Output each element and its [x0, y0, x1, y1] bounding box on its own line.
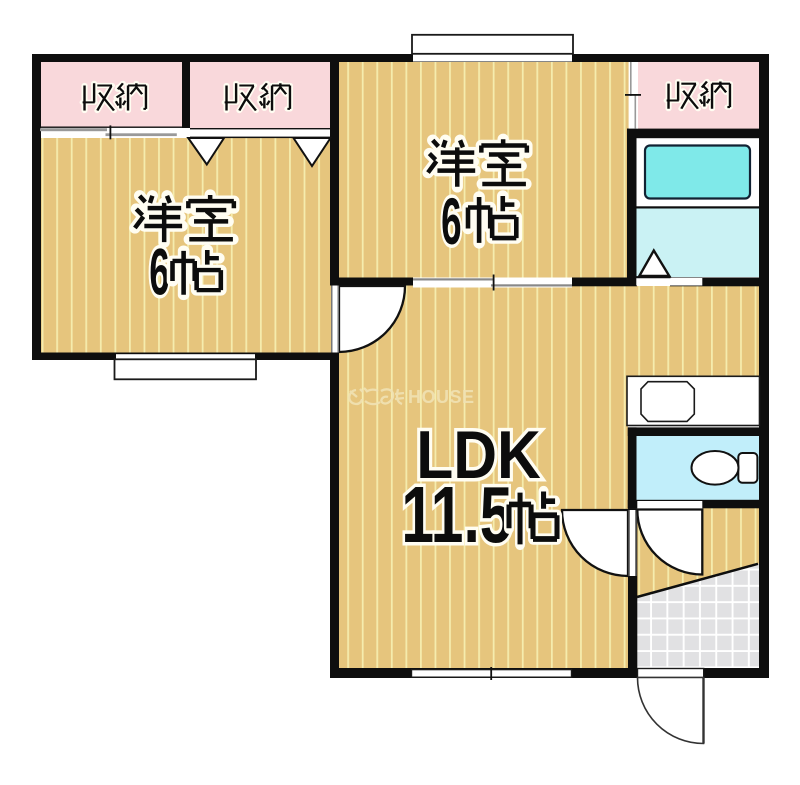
svg-text:6: 6 [441, 186, 461, 259]
svg-text:11.5: 11.5 [401, 469, 512, 559]
svg-text:HOUSE: HOUSE [408, 387, 475, 407]
svg-text:6: 6 [149, 237, 169, 310]
